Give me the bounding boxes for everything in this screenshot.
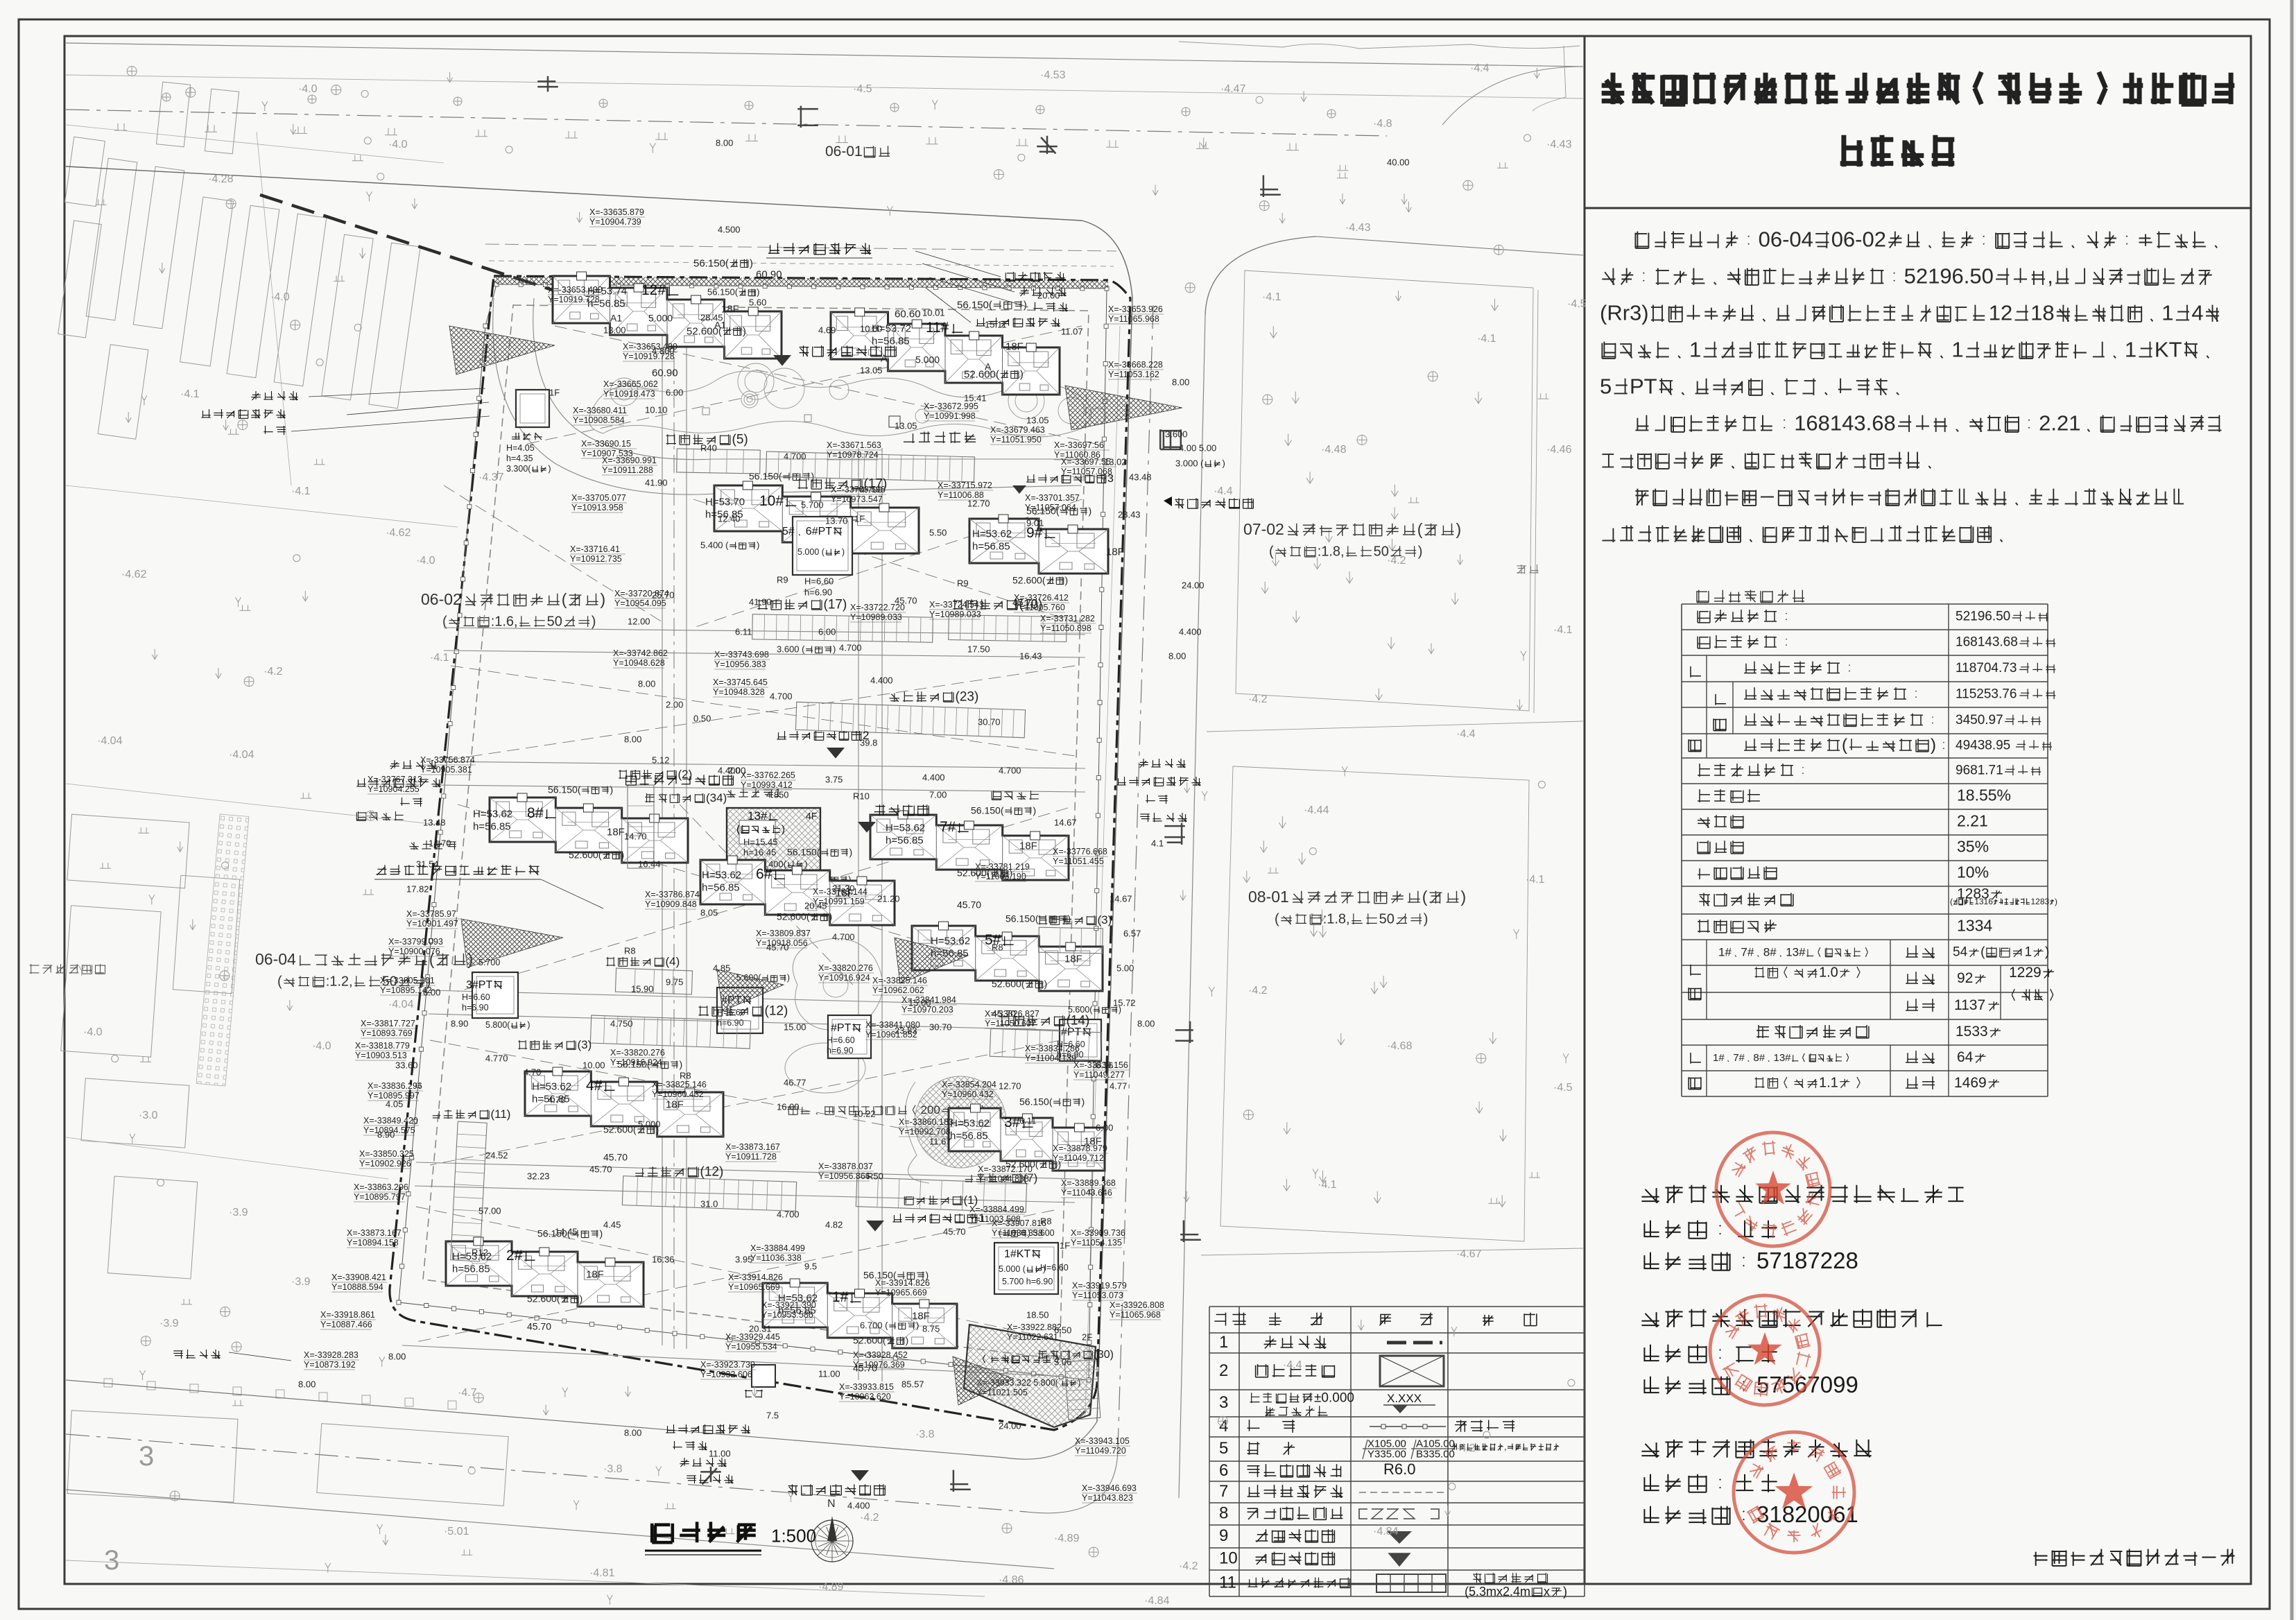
svg-text:168143.68: 168143.68	[1956, 635, 2018, 650]
svg-text:Y=11065.968: Y=11065.968	[1110, 1310, 1161, 1320]
svg-text:·5.01: ·5.01	[444, 1526, 469, 1537]
svg-text:52196.50: 52196.50	[1956, 610, 2010, 624]
svg-text:18F: 18F	[721, 303, 739, 315]
svg-text:56.150(: 56.150(	[1005, 913, 1039, 924]
svg-text:Y=10948.328: Y=10948.328	[713, 687, 765, 697]
svg-text:X=-33653.926: X=-33653.926	[1108, 304, 1163, 314]
svg-text:2: 2	[1219, 1361, 1228, 1380]
svg-text:): )	[1461, 888, 1467, 906]
svg-text:24.00: 24.00	[999, 1421, 1021, 1431]
svg-text:·4.0: ·4.0	[83, 1026, 103, 1038]
svg-text:(23): (23)	[956, 690, 979, 705]
svg-text:8.90: 8.90	[377, 1130, 395, 1140]
svg-text::1.8,: :1.8,	[1318, 544, 1345, 559]
svg-text:·3.8: ·3.8	[603, 1463, 623, 1475]
svg-text:Y=10992.708: Y=10992.708	[899, 1127, 951, 1137]
svg-text:11#: 11#	[926, 320, 949, 336]
svg-text:·3.8: ·3.8	[915, 1429, 935, 1440]
svg-text:Y=10963.620: Y=10963.620	[839, 1392, 891, 1402]
svg-text:20.45: 20.45	[804, 901, 827, 911]
svg-text:·4.2: ·4.2	[1248, 985, 1268, 997]
svg-text:1F: 1F	[1060, 1241, 1070, 1251]
svg-text:9: 9	[1219, 1526, 1228, 1545]
svg-text:5.06: 5.06	[1054, 1357, 1071, 1368]
svg-text:R12: R12	[472, 1248, 488, 1258]
svg-text:H=6.60: H=6.60	[827, 1035, 855, 1045]
svg-text:8.00: 8.00	[1172, 377, 1189, 388]
svg-text:·4.62: ·4.62	[121, 569, 147, 580]
svg-text:4.400: 4.400	[870, 675, 893, 686]
svg-text:(: (	[1950, 897, 1953, 906]
svg-text:12.70: 12.70	[999, 1081, 1021, 1092]
svg-text:X=-33873.167: X=-33873.167	[347, 1228, 402, 1238]
svg-text:Y=10955.534: Y=10955.534	[725, 1342, 777, 1352]
svg-text:(17): (17)	[824, 598, 847, 612]
svg-text:X=-33665.062: X=-33665.062	[603, 379, 658, 389]
svg-text:17.82: 17.82	[406, 884, 429, 895]
svg-text:Y=11050.898: Y=11050.898	[1040, 623, 1091, 633]
svg-text:2.21: 2.21	[2039, 411, 2080, 435]
svg-text:50: 50	[1379, 911, 1395, 927]
svg-text:(14): (14)	[1067, 1014, 1090, 1028]
svg-text:2.00: 2.00	[728, 766, 745, 776]
svg-text:85.57: 85.57	[901, 1379, 924, 1390]
svg-text:Y=10948.628: Y=10948.628	[613, 658, 665, 668]
svg-text:Y=11054.135: Y=11054.135	[1071, 1238, 1122, 1248]
svg-text:3450.97: 3450.97	[1956, 713, 2003, 727]
svg-text:56.150(: 56.150(	[971, 805, 1004, 816]
svg-text:10.00: 10.00	[860, 324, 883, 334]
svg-text:(: (	[277, 974, 282, 989]
svg-text:16.00: 16.00	[777, 1102, 800, 1112]
svg-text:50: 50	[547, 614, 562, 629]
svg-text:): )	[1044, 979, 1048, 990]
svg-text:): )	[1418, 544, 1423, 559]
svg-text:07-02: 07-02	[1243, 520, 1284, 538]
svg-text:Y=11048.646: Y=11048.646	[1061, 1188, 1112, 1198]
svg-text:·4.47: ·4.47	[1220, 83, 1246, 95]
svg-text:X=-33731.282: X=-33731.282	[1040, 614, 1095, 623]
svg-text:18F: 18F	[1005, 341, 1024, 352]
svg-text:): )	[1089, 506, 1092, 517]
svg-text:X=-33653.430: X=-33653.430	[548, 285, 603, 295]
svg-text:5: 5	[1600, 374, 1612, 398]
svg-text:4.05: 4.05	[386, 1099, 403, 1110]
svg-text:4.70: 4.70	[548, 1095, 565, 1105]
svg-text:PT: PT	[1630, 374, 1657, 398]
svg-text:13.70: 13.70	[825, 516, 848, 526]
svg-text::1.2,: :1.2,	[326, 974, 353, 989]
svg-text:5.400 (: 5.400 (	[700, 540, 729, 551]
svg-text:·4.1: ·4.1	[1526, 874, 1545, 886]
svg-text:Y=11049.720: Y=11049.720	[1075, 1446, 1126, 1456]
svg-text:21.30: 21.30	[832, 884, 855, 894]
svg-text:13.05: 13.05	[1026, 415, 1049, 426]
svg-text:H=53.62: H=53.62	[931, 935, 970, 947]
svg-text:·4.89: ·4.89	[818, 1581, 844, 1593]
svg-text:·4.2: ·4.2	[1179, 1560, 1198, 1572]
svg-text:60.90: 60.90	[756, 268, 782, 280]
svg-text:Y=10893.769: Y=10893.769	[361, 1028, 413, 1038]
svg-text:X=-33716.41: X=-33716.41	[570, 544, 620, 554]
svg-text:): )	[1024, 299, 1027, 311]
svg-text:5.000: 5.000	[648, 313, 673, 324]
svg-text:X=-33928.283: X=-33928.283	[304, 1350, 359, 1360]
svg-text:(11): (11)	[491, 1108, 511, 1121]
svg-text:52.600(: 52.600(	[569, 850, 602, 861]
svg-text:h=56.85: h=56.85	[950, 1130, 988, 1141]
svg-text:8#: 8#	[527, 805, 544, 821]
svg-text:8.00: 8.00	[1168, 651, 1186, 662]
svg-text:4.700: 4.700	[770, 691, 793, 702]
svg-text:X=-33680.411: X=-33680.411	[573, 406, 627, 415]
svg-text:45.70: 45.70	[766, 942, 789, 953]
svg-text:60.60: 60.60	[895, 308, 921, 320]
svg-text:Y=10887.466: Y=10887.466	[320, 1320, 372, 1329]
svg-text:): )	[680, 1059, 683, 1070]
svg-text:13.05: 13.05	[860, 365, 883, 376]
svg-text:x: x	[1544, 1585, 1550, 1599]
svg-text:1: 1	[1951, 337, 1963, 361]
svg-text:,: ,	[2047, 264, 2053, 288]
svg-text:(: (	[1269, 544, 1274, 559]
svg-text:X=-33923.730: X=-33923.730	[700, 1360, 755, 1370]
svg-text:3: 3	[1219, 1393, 1228, 1412]
svg-text:): )	[1020, 368, 1024, 380]
svg-text:15.41: 15.41	[964, 393, 987, 404]
svg-text:17.50: 17.50	[967, 644, 990, 655]
svg-text:): )	[592, 614, 596, 629]
svg-text:06-04: 06-04	[1759, 227, 1813, 251]
svg-text:5.000: 5.000	[915, 354, 940, 365]
svg-text:X=-33926.808: X=-33926.808	[1110, 1300, 1164, 1310]
svg-text:3#PT: 3#PT	[466, 979, 492, 991]
svg-text:1: 1	[1219, 1333, 1228, 1352]
svg-text:X=-33668.228: X=-33668.228	[1108, 360, 1163, 370]
svg-text:18F: 18F	[607, 826, 625, 838]
svg-text:X=-33817.727: X=-33817.727	[361, 1019, 415, 1028]
svg-text:): )	[601, 590, 606, 608]
svg-text:X=-33825.146: X=-33825.146	[652, 1080, 707, 1089]
svg-text:(3): (3)	[578, 1038, 592, 1051]
svg-text:R9: R9	[957, 578, 969, 589]
svg-text:5.12: 5.12	[652, 755, 669, 766]
svg-text:14.70: 14.70	[429, 838, 451, 849]
svg-text:Y=10901.497: Y=10901.497	[406, 919, 458, 929]
svg-text:H=15.45: H=15.45	[743, 837, 778, 847]
svg-text:13.02: 13.02	[1104, 457, 1127, 467]
svg-text:1334: 1334	[1957, 917, 1992, 935]
svg-text:·4.0: ·4.0	[312, 1040, 331, 1052]
svg-text:5.000 (: 5.000 (	[999, 1264, 1026, 1274]
svg-text:4.800: 4.800	[652, 346, 675, 356]
svg-text:5#: 5#	[782, 526, 795, 537]
svg-text:18F: 18F	[1106, 546, 1124, 558]
svg-text:11.67: 11.67	[929, 1137, 951, 1147]
svg-text:52.600(: 52.600(	[777, 911, 810, 922]
svg-text:54: 54	[1953, 945, 1968, 960]
svg-text:X=-33918.861: X=-33918.861	[320, 1310, 375, 1320]
svg-text:6.11: 6.11	[1019, 1116, 1036, 1126]
svg-text:6: 6	[1219, 1461, 1228, 1480]
svg-text:Y=11043.823: Y=11043.823	[1082, 1493, 1133, 1503]
svg-text:): )	[1033, 805, 1037, 816]
svg-text:·4.2: ·4.2	[1248, 693, 1268, 705]
svg-text:·4.0: ·4.0	[270, 291, 290, 303]
svg-text:41.90: 41.90	[749, 597, 772, 607]
svg-text:Y=11049.712: Y=11049.712	[1053, 1153, 1104, 1163]
svg-text:Y335.00: Y335.00	[1367, 1448, 1406, 1460]
svg-text:X=-33860.183: X=-33860.183	[899, 1117, 953, 1127]
svg-text:X=-33742.862: X=-33742.862	[613, 648, 668, 658]
svg-text:6.00: 6.00	[1096, 1123, 1113, 1133]
svg-text:9.75: 9.75	[666, 977, 683, 988]
svg-text:h=56.85: h=56.85	[702, 881, 740, 893]
svg-text:4.00 5.00: 4.00 5.00	[1179, 443, 1216, 454]
svg-text:14.67: 14.67	[1054, 818, 1077, 828]
svg-text:35%: 35%	[1957, 838, 1989, 856]
svg-text:1283: 1283	[2031, 897, 2050, 906]
svg-text:X=-33849.420: X=-33849.420	[363, 1116, 418, 1126]
svg-text:Y=10956.383: Y=10956.383	[714, 660, 766, 669]
svg-text:Y=10911.288: Y=10911.288	[602, 465, 653, 475]
svg-text:2F: 2F	[1082, 1332, 1092, 1343]
svg-text:X=-33825.146: X=-33825.146	[872, 976, 927, 985]
svg-text:6.00: 6.00	[666, 388, 683, 398]
svg-text:Y=10962.062: Y=10962.062	[872, 985, 924, 995]
svg-text:8.00: 8.00	[716, 138, 733, 148]
svg-text:): )	[743, 325, 746, 337]
svg-text:52.600(: 52.600(	[527, 1293, 560, 1304]
svg-text:X=-33914.826: X=-33914.826	[875, 1278, 930, 1288]
svg-text:·4.44: ·4.44	[1304, 804, 1329, 816]
svg-text:60.90: 60.90	[652, 367, 678, 379]
svg-text:45.70: 45.70	[895, 596, 917, 606]
svg-text:Y=11036.338: Y=11036.338	[750, 1253, 802, 1263]
svg-text:1137: 1137	[1954, 997, 1985, 1013]
svg-text:H=53.62: H=53.62	[886, 822, 925, 834]
svg-text:21.20: 21.20	[877, 894, 900, 904]
svg-text:6.36: 6.36	[1096, 1060, 1113, 1071]
svg-text:·4.37: ·4.37	[478, 472, 504, 483]
svg-text:X=-33786.874: X=-33786.874	[645, 890, 700, 899]
svg-text:57.00: 57.00	[478, 1206, 501, 1216]
svg-text:X=-33635.879: X=-33635.879	[589, 207, 644, 217]
svg-text:23.83: 23.83	[895, 1026, 917, 1036]
svg-text:Y=10973.547: Y=10973.547	[831, 494, 883, 504]
svg-text:H=53.70: H=53.70	[705, 496, 745, 508]
svg-text:8.00: 8.00	[624, 734, 641, 745]
svg-text:8.00: 8.00	[388, 1352, 406, 1362]
svg-text:X=-33850.325: X=-33850.325	[359, 1149, 414, 1159]
svg-text:X=-33805.001: X=-33805.001	[380, 976, 435, 985]
svg-text:·4.1: ·4.1	[180, 388, 200, 400]
svg-text:·3.9: ·3.9	[159, 1318, 179, 1329]
svg-text:Y=11036.338: Y=11036.338	[992, 1228, 1043, 1238]
svg-text:41.90: 41.90	[645, 478, 668, 488]
svg-text:46.77: 46.77	[784, 1078, 806, 1088]
svg-text:4.82: 4.82	[825, 1220, 843, 1230]
svg-text:4.700: 4.700	[784, 451, 806, 462]
svg-text:): )	[548, 464, 551, 474]
svg-text:X=-33785.97: X=-33785.97	[406, 909, 456, 919]
svg-text:3: 3	[104, 1545, 119, 1576]
svg-text:18F: 18F	[1019, 840, 1037, 852]
svg-text:X=-33907.816: X=-33907.816	[992, 1218, 1046, 1228]
svg-text:X=-33781.219: X=-33781.219	[975, 862, 1030, 872]
svg-text:13.00: 13.00	[603, 325, 626, 336]
svg-text:15.00: 15.00	[784, 1022, 806, 1033]
svg-text:): )	[1068, 913, 1071, 924]
svg-text:39.8: 39.8	[860, 738, 877, 748]
svg-text:1: 1	[1689, 337, 1701, 361]
svg-text:X=-33928.452: X=-33928.452	[853, 1350, 908, 1360]
svg-text:Y=10894.158: Y=10894.158	[347, 1238, 399, 1248]
svg-text:(4): (4)	[666, 955, 680, 968]
svg-text:#PT: #PT	[1061, 1026, 1082, 1038]
svg-text:15.72: 15.72	[1113, 998, 1136, 1008]
svg-text:1#KT: 1#KT	[1004, 1248, 1030, 1260]
svg-text:R9: R9	[777, 575, 788, 585]
svg-text:Y=11049.277: Y=11049.277	[1073, 1070, 1125, 1080]
svg-text:): )	[610, 784, 614, 795]
svg-text:X=-33908.421: X=-33908.421	[331, 1273, 386, 1282]
svg-text:1229: 1229	[2009, 965, 2042, 981]
svg-text:H=53.62: H=53.62	[702, 869, 741, 881]
svg-text:11: 11	[1219, 1574, 1236, 1592]
svg-text:): )	[757, 287, 759, 298]
svg-text:Y=10909.848: Y=10909.848	[645, 899, 697, 909]
svg-text:·4.43: ·4.43	[1546, 139, 1572, 150]
svg-text:1F: 1F	[549, 388, 560, 398]
svg-text:52196.50: 52196.50	[1904, 264, 1994, 288]
svg-text:56.150(: 56.150(	[957, 299, 992, 311]
svg-text:5.00: 5.00	[1116, 963, 1134, 974]
svg-text:52.600(: 52.600(	[1012, 575, 1046, 586]
svg-text:·4.1: ·4.1	[1477, 333, 1496, 345]
svg-text:(Rr3): (Rr3)	[1600, 300, 1649, 325]
svg-text:3.95: 3.95	[735, 1255, 752, 1265]
svg-text:X=-33715.972: X=-33715.972	[938, 481, 992, 490]
svg-text:4.400: 4.400	[1179, 627, 1202, 637]
svg-text:6#PT: 6#PT	[806, 526, 832, 537]
svg-text:h=6.90: h=6.90	[804, 587, 832, 598]
svg-text:·4.4: ·4.4	[1214, 485, 1233, 497]
svg-text:#PT: #PT	[831, 1022, 852, 1034]
svg-text:): )	[1078, 1378, 1080, 1388]
svg-text:Y=10991.998: Y=10991.998	[924, 411, 976, 421]
svg-text:1#: 1#	[1713, 1052, 1725, 1064]
svg-text:4.69: 4.69	[818, 325, 836, 336]
svg-text:3.75: 3.75	[825, 775, 843, 785]
svg-text:1316: 1316	[1974, 897, 1993, 906]
svg-text:56.150(: 56.150(	[1019, 1096, 1053, 1108]
svg-text:X=-33762.265: X=-33762.265	[741, 770, 795, 780]
svg-text:06-04: 06-04	[255, 950, 296, 968]
svg-text:08-01: 08-01	[1248, 888, 1289, 906]
svg-text:,: ,	[1504, 1442, 1507, 1452]
svg-text:11.07: 11.07	[1061, 327, 1083, 337]
svg-text:·4.04: ·4.04	[388, 999, 414, 1010]
svg-text:3.300(: 3.300(	[506, 464, 531, 474]
svg-text:KT: KT	[2155, 337, 2182, 361]
svg-text:X=-33701.357: X=-33701.357	[1025, 493, 1080, 503]
svg-text:14.67: 14.67	[1110, 894, 1132, 904]
svg-text:64: 64	[1957, 1049, 1974, 1065]
svg-text:R10: R10	[853, 791, 870, 802]
svg-text:): )	[600, 1228, 603, 1239]
svg-text:·4.81: ·4.81	[589, 1567, 615, 1579]
svg-text:15.90: 15.90	[631, 984, 654, 994]
svg-text:4.700: 4.700	[839, 643, 862, 653]
svg-text:45.70: 45.70	[943, 1227, 966, 1237]
svg-text:31820061: 31820061	[1756, 1501, 1858, 1527]
svg-text:(: (	[442, 614, 447, 629]
svg-text:(30): (30)	[1094, 1349, 1114, 1361]
svg-text:h=56.85: h=56.85	[972, 540, 1010, 552]
svg-text:1.0: 1.0	[1819, 965, 1838, 980]
svg-text:6.700 (: 6.700 (	[860, 1320, 888, 1331]
svg-text:3: 3	[139, 1441, 154, 1472]
svg-text:20.31: 20.31	[749, 1324, 772, 1334]
svg-text:X=-33919.579: X=-33919.579	[1072, 1281, 1127, 1291]
svg-text:(: (	[562, 590, 567, 608]
svg-text:X=-33690.991: X=-33690.991	[602, 456, 657, 465]
svg-text:7.5: 7.5	[766, 1411, 779, 1421]
svg-text:X=-33943.105: X=-33943.105	[1075, 1436, 1130, 1446]
svg-text:·4.1: ·4.1	[1262, 291, 1281, 303]
svg-text:X=-33705.077: X=-33705.077	[571, 493, 626, 503]
svg-text:·4.46: ·4.46	[1546, 444, 1572, 456]
svg-text:56.150(: 56.150(	[787, 847, 820, 858]
svg-text:·4.1: ·4.1	[430, 652, 449, 664]
svg-text:(: (	[1842, 736, 1847, 755]
svg-text:8.00: 8.00	[638, 679, 655, 689]
svg-text:Y=10916.924: Y=10916.924	[818, 973, 870, 983]
svg-text:4.850: 4.850	[766, 790, 789, 800]
svg-text:10.00: 10.00	[582, 1060, 605, 1071]
svg-text:3.000 (: 3.000 (	[1175, 458, 1204, 469]
svg-text:X=-33826.827: X=-33826.827	[985, 1009, 1039, 1019]
svg-text:·4.62: ·4.62	[386, 527, 411, 539]
svg-text:52.600(: 52.600(	[964, 368, 999, 380]
svg-text:): )	[782, 823, 785, 835]
svg-text:Y=10965.669: Y=10965.669	[875, 1288, 927, 1298]
svg-text:1: 1	[2161, 300, 2173, 325]
svg-text:10.10: 10.10	[645, 405, 668, 415]
svg-text::1.8,: :1.8,	[1323, 911, 1350, 927]
svg-text:2.00: 2.00	[666, 700, 683, 710]
svg-text:R50: R50	[867, 1171, 883, 1182]
svg-text:·3.9: ·3.9	[229, 1207, 248, 1218]
svg-text:h=6.90: h=6.90	[827, 1046, 854, 1055]
svg-text:h=56.85: h=56.85	[473, 820, 511, 832]
svg-text:X=-33884.499: X=-33884.499	[750, 1243, 805, 1253]
svg-text:4: 4	[2191, 300, 2203, 325]
svg-text:20.00: 20.00	[1037, 291, 1060, 301]
svg-text:X=-33854.204: X=-33854.204	[942, 1080, 996, 1089]
svg-text:Y=11051.950: Y=11051.950	[990, 435, 1042, 445]
svg-text:): )	[580, 1293, 583, 1304]
svg-text:Y=11051.455: Y=11051.455	[1053, 856, 1104, 866]
svg-text:Y=10895.797: Y=10895.797	[354, 1192, 406, 1202]
svg-text:31.0: 31.0	[700, 1199, 718, 1209]
svg-text:X=-33884.499: X=-33884.499	[969, 1205, 1024, 1214]
svg-text:6.50: 6.50	[1054, 1325, 1071, 1336]
svg-text:X=-33946.693: X=-33946.693	[1082, 1483, 1137, 1493]
svg-text:): )	[833, 644, 836, 655]
svg-text:Y=10960.432: Y=10960.432	[942, 1089, 994, 1099]
